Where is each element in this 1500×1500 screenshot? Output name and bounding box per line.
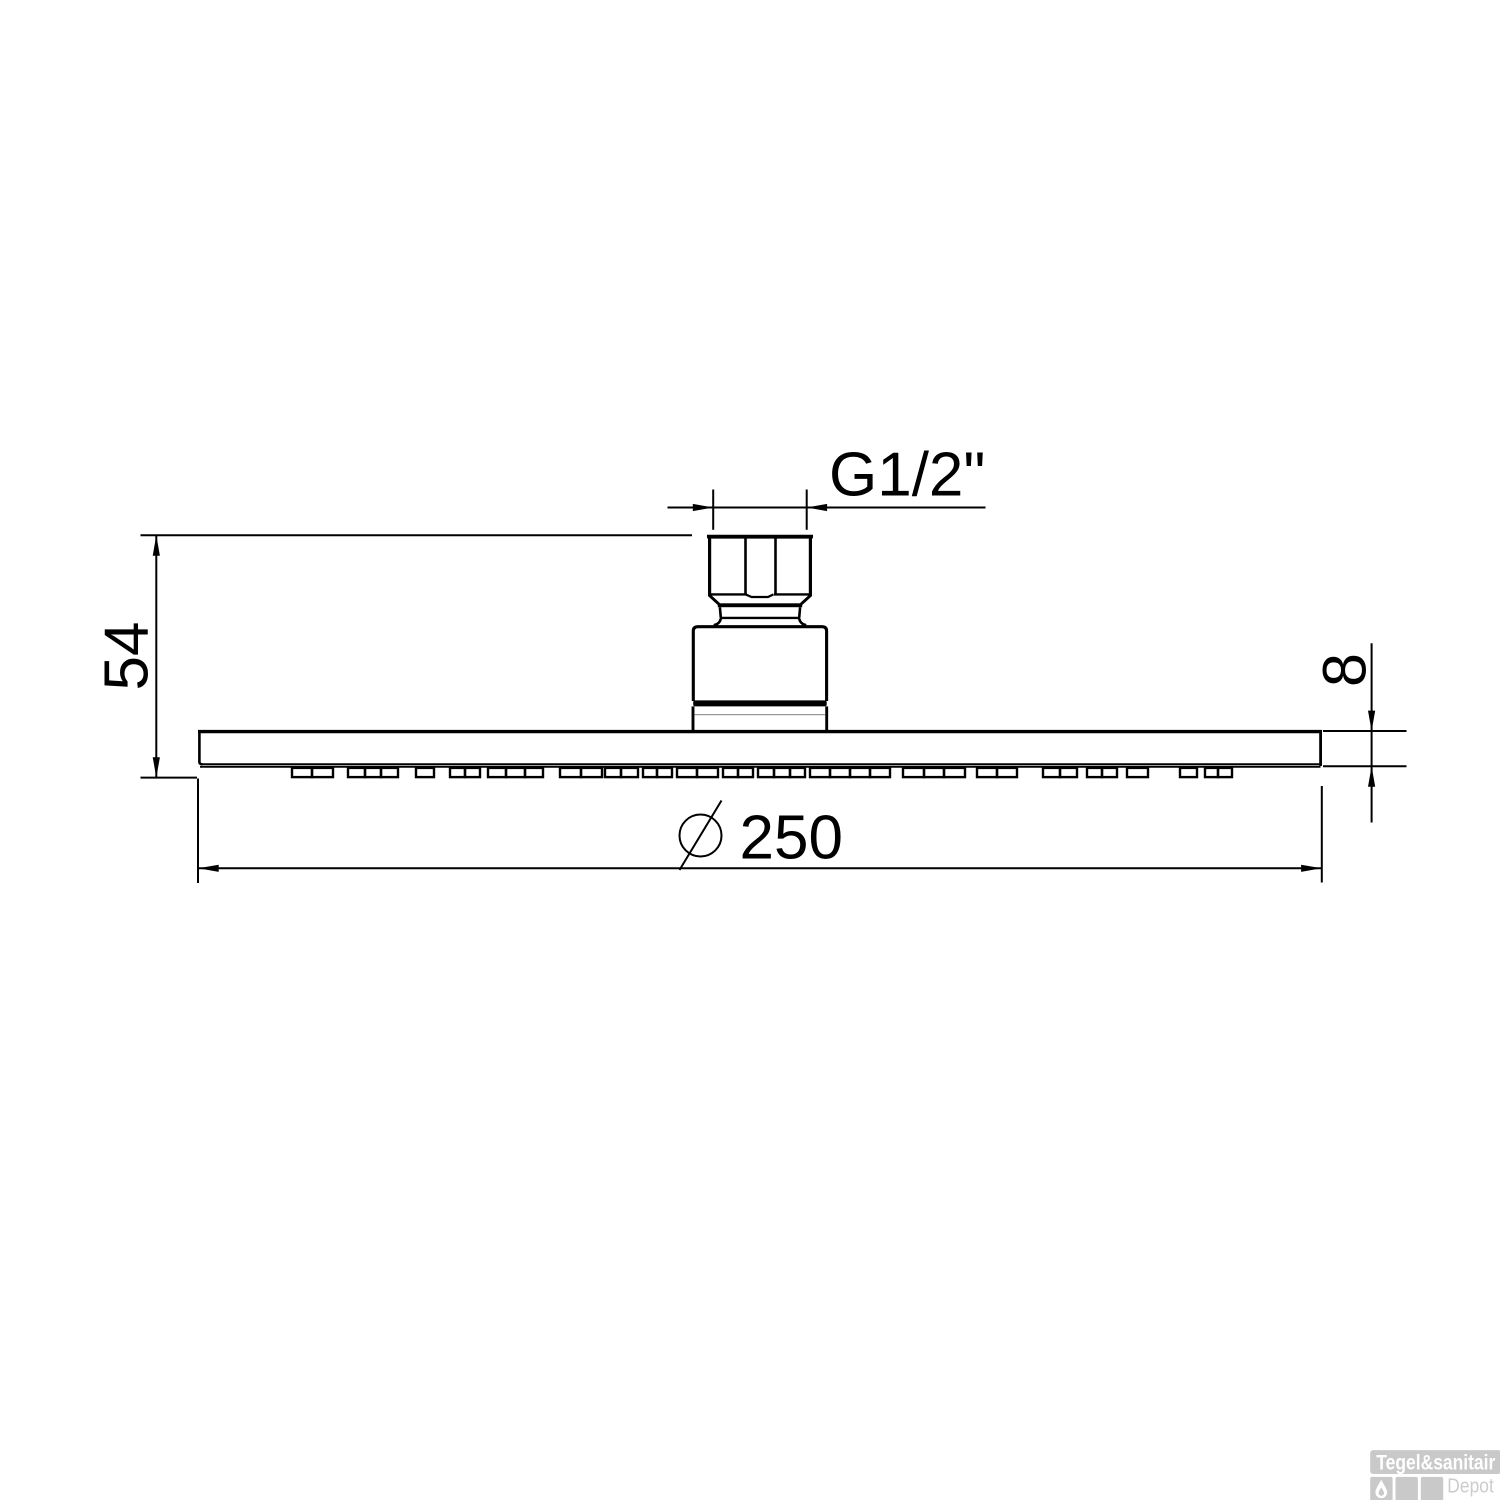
svg-text:Tegel&sanitair: Tegel&sanitair bbox=[1376, 1451, 1496, 1475]
svg-text:8: 8 bbox=[1311, 653, 1379, 687]
svg-text:54: 54 bbox=[93, 622, 162, 691]
svg-text:Depot: Depot bbox=[1447, 1474, 1494, 1497]
svg-text:250: 250 bbox=[740, 804, 843, 873]
svg-text:G1/2": G1/2" bbox=[829, 441, 985, 510]
